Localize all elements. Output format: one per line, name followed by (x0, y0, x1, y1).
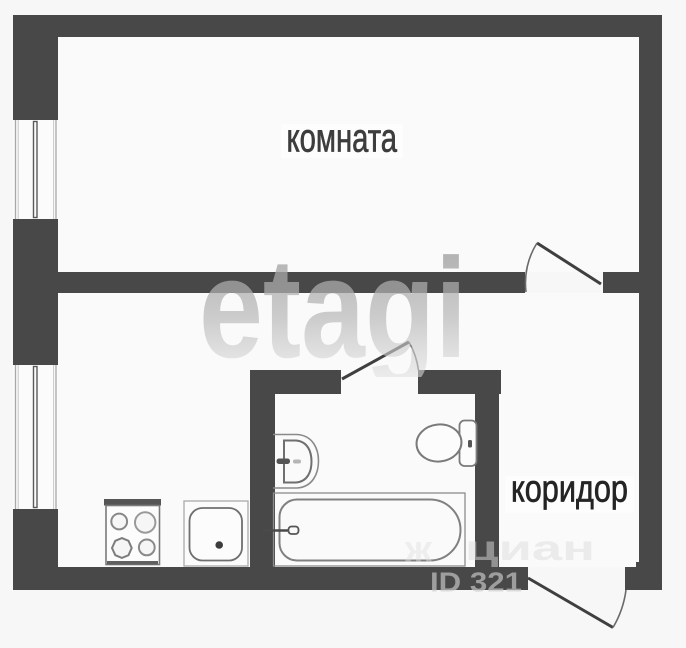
svg-text:ж: ж (404, 529, 433, 571)
svg-text:комната: комната (287, 117, 398, 161)
svg-text:ID 321: ID 321 (430, 567, 522, 598)
svg-text:etagi: etagi (199, 229, 467, 388)
svg-text:коридор: коридор (511, 469, 628, 511)
svg-text:циан: циан (465, 529, 595, 568)
